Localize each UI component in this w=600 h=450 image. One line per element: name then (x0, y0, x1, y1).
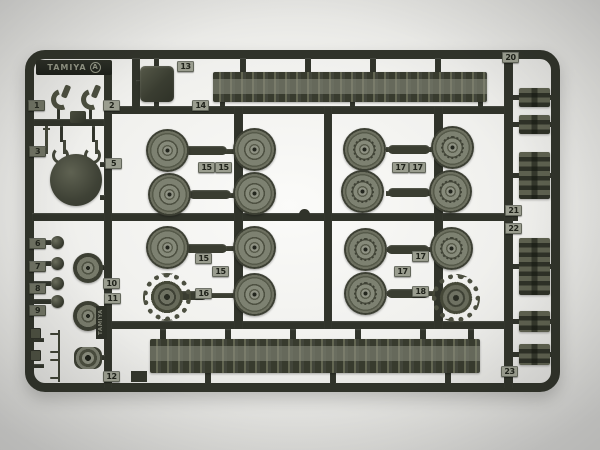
sprue-connector (370, 58, 376, 73)
track-section-top (213, 72, 487, 102)
part-tag-7: 7 (29, 261, 46, 272)
part-tag-21: 21 (505, 205, 522, 216)
sprue-connector (240, 58, 246, 73)
brand-side-text: TAMIYA (96, 306, 107, 339)
knob-part (51, 295, 64, 308)
part-tag-16: 16 (195, 288, 212, 299)
return-roller-part (74, 347, 102, 369)
turret-disc-part (50, 154, 102, 206)
road-wheel-bolted (430, 227, 473, 270)
road-wheel (233, 273, 276, 316)
track-link-piece (519, 344, 550, 365)
part-tag-5: 5 (105, 158, 122, 169)
part-tag-17: 17 (409, 162, 426, 173)
part-tag-9: 9 (29, 305, 46, 316)
sprue-connector (160, 329, 166, 339)
part-tag-13: 13 (177, 61, 194, 72)
track-link-piece (519, 115, 550, 134)
track-section-bottom (150, 339, 480, 373)
brand-plate: TAMIYA A (36, 60, 112, 75)
part-tag-23: 23 (501, 366, 518, 377)
idler-wheel-part (73, 253, 103, 283)
track-link-piece (519, 311, 550, 332)
sprue-connector (34, 299, 51, 304)
mold-wedge (520, 58, 555, 77)
track-link-piece (519, 152, 550, 199)
part-tag-18: 18 (412, 286, 429, 297)
road-wheel (148, 173, 191, 216)
part-tag-20: 20 (502, 52, 519, 63)
part-tag-12: 12 (103, 371, 120, 382)
sprue-arm-pod (185, 146, 227, 155)
part-tag-2: 2 (103, 100, 120, 111)
track-link-piece (519, 238, 550, 295)
sprue-arm-pod (388, 145, 430, 154)
sprue-connector (34, 364, 44, 368)
road-wheel (146, 129, 189, 172)
part-tag-17: 17 (412, 251, 429, 262)
road-wheel-bolted (344, 272, 387, 315)
runner-bar-left-cross (34, 119, 104, 126)
sprue-connector (100, 195, 105, 200)
knob-part (51, 257, 64, 270)
runner-bar-horizontal-upper (112, 106, 512, 114)
road-wheel (146, 226, 189, 269)
knob-part (51, 277, 64, 290)
road-wheel (233, 226, 276, 269)
road-wheel-bolted (344, 228, 387, 271)
sprue-gate-nub (299, 209, 310, 220)
part-tag-15: 15 (215, 162, 232, 173)
sprue-connector (468, 329, 474, 339)
tag-unreadable (30, 350, 41, 361)
sprue-connector (435, 58, 441, 73)
part-tag-17: 17 (392, 162, 409, 173)
tag-unreadable (30, 328, 41, 339)
road-wheel-bolted (429, 170, 472, 213)
part-tag-17: 17 (394, 266, 411, 277)
tow-hook-part (78, 85, 100, 111)
runner-bar-vertical-center (324, 106, 332, 329)
part-tag-10: 10 (103, 278, 120, 289)
track-link-piece (519, 88, 550, 107)
road-wheel-bolted (431, 126, 474, 169)
road-wheel-bolted (343, 128, 386, 171)
part-tag-15: 15 (198, 162, 215, 173)
part-tag-11: 11 (104, 293, 121, 304)
part-tag-1: 1 (28, 100, 45, 111)
sprue-photo: TAMIYA A TAMIYA 13 14 1 2 3 5 6 7 8 9 10 (0, 0, 600, 450)
small-block-part (70, 111, 86, 123)
part-tag-8: 8 (29, 283, 46, 294)
sprue-letter-badge: A (90, 62, 101, 73)
sprue-connector (305, 58, 311, 73)
tow-hook-part (48, 85, 70, 111)
sprue-arm-pod (388, 188, 430, 197)
sprue-connector (225, 329, 231, 339)
tag-unreadable (131, 371, 147, 382)
part-tag-3: 3 (29, 146, 46, 157)
sprue-arm-pod (185, 244, 227, 253)
knob-part (51, 236, 64, 249)
drive-sprocket (143, 273, 191, 321)
grab-handle-part (44, 330, 60, 356)
grab-handle-part (44, 356, 60, 382)
part-tag-6: 6 (29, 238, 46, 249)
hull-box-part (140, 66, 174, 102)
sprue-arm-pod (189, 190, 231, 199)
road-wheel (233, 172, 276, 215)
brand-text: TAMIYA (47, 60, 86, 75)
part-tag-14: 14 (192, 100, 209, 111)
part-tag-15: 15 (195, 253, 212, 264)
sprue-connector (420, 329, 426, 339)
part-tag-22: 22 (505, 223, 522, 234)
sprue-connector (290, 329, 296, 339)
road-wheel (233, 128, 276, 171)
sprue-connector (355, 329, 361, 339)
road-wheel-bolted (341, 170, 384, 213)
part-tag-15: 15 (212, 266, 229, 277)
runner-bar-horizontal-lower (88, 321, 512, 329)
